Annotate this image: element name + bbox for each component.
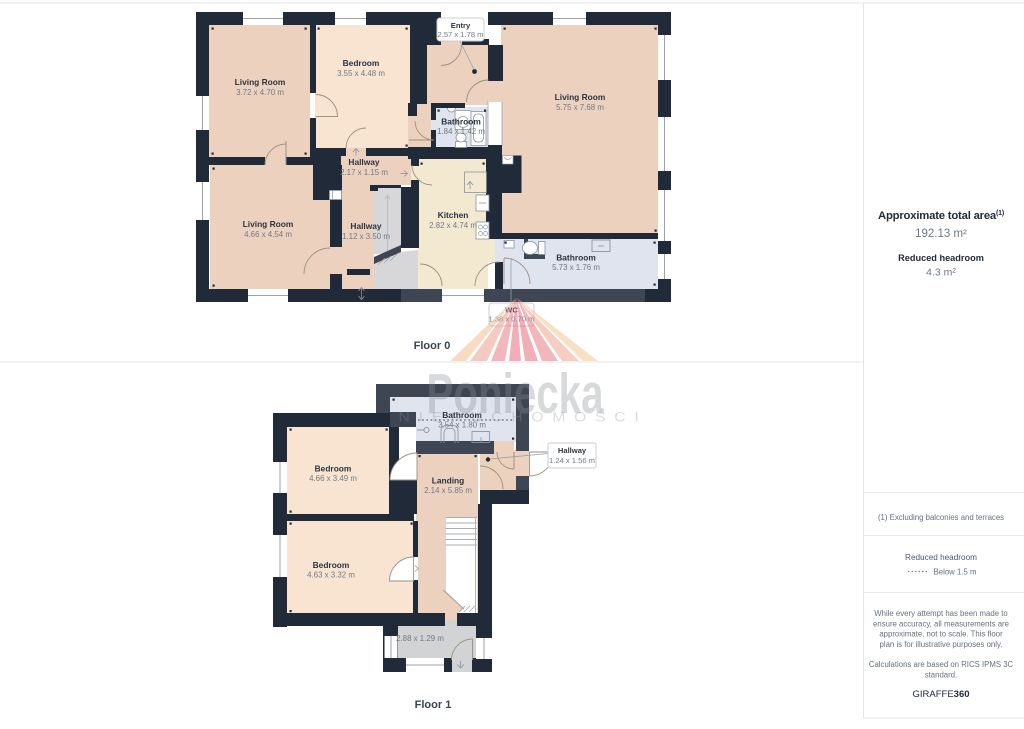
svg-text:Living Room: Living Room — [555, 92, 606, 102]
svg-text:Entry: Entry — [451, 21, 471, 30]
svg-text:Bedroom: Bedroom — [315, 464, 352, 474]
svg-text:1.84 x 1.42 m: 1.84 x 1.42 m — [437, 127, 485, 136]
svg-text:4.66 x 4.54 m: 4.66 x 4.54 m — [244, 230, 292, 239]
svg-text:2.82 x 4.74 m: 2.82 x 4.74 m — [429, 221, 477, 230]
svg-text:3.55 x 4.48 m: 3.55 x 4.48 m — [337, 69, 385, 78]
svg-text:5.75 x 7.68 m: 5.75 x 7.68 m — [556, 103, 604, 112]
svg-text:1.12 x 3.50 m: 1.12 x 3.50 m — [342, 232, 390, 241]
svg-text:(1) Excluding balconies and te: (1) Excluding balconies and terraces — [878, 513, 1004, 522]
svg-text:3.72 x 4.70 m: 3.72 x 4.70 m — [236, 88, 284, 97]
svg-text:Floor 1: Floor 1 — [415, 699, 452, 711]
svg-text:1.24 x 1.56 m: 1.24 x 1.56 m — [549, 456, 595, 465]
svg-text:standard.: standard. — [925, 670, 958, 679]
svg-text:Reduced headroom: Reduced headroom — [898, 253, 984, 263]
svg-text:Living Room: Living Room — [243, 219, 294, 229]
svg-text:Hallway: Hallway — [348, 157, 380, 167]
svg-text:2.14 x 5.85 m: 2.14 x 5.85 m — [424, 486, 472, 495]
svg-text:Reduced headroom: Reduced headroom — [905, 553, 977, 562]
svg-text:2.57 x 1.78 m: 2.57 x 1.78 m — [437, 30, 483, 39]
svg-text:Hallway: Hallway — [350, 221, 382, 231]
svg-text:Landing: Landing — [432, 476, 465, 486]
svg-text:Bedroom: Bedroom — [313, 560, 350, 570]
svg-text:NIERUCHOMOŚCI: NIERUCHOMOŚCI — [399, 410, 648, 425]
svg-text:Bathroom: Bathroom — [441, 117, 481, 127]
svg-text:Approximate total area(1): Approximate total area(1) — [878, 210, 1004, 222]
svg-text:Calculations are based on RICS: Calculations are based on RICS IPMS 3C — [869, 660, 1014, 669]
svg-text:192.13 m²: 192.13 m² — [915, 228, 967, 240]
svg-text:GIRAFFE360: GIRAFFE360 — [912, 689, 969, 700]
svg-text:Hallway: Hallway — [558, 446, 587, 455]
svg-text:ensure accuracy, all measureme: ensure accuracy, all measurements are — [873, 619, 1009, 628]
svg-text:2.88 x 1.29 m: 2.88 x 1.29 m — [396, 634, 444, 643]
svg-text:approximate, not to scale. Thi: approximate, not to scale. This floor — [879, 630, 1003, 639]
svg-text:Bedroom: Bedroom — [343, 58, 380, 68]
svg-text:While every attempt has been m: While every attempt has been made to — [874, 609, 1008, 618]
svg-text:Below 1.5 m: Below 1.5 m — [934, 568, 977, 577]
svg-text:Living Room: Living Room — [235, 77, 286, 87]
svg-text:4.3 m²: 4.3 m² — [926, 267, 956, 279]
svg-text:Kitchen: Kitchen — [438, 210, 469, 220]
svg-text:5.73 x 1.76 m: 5.73 x 1.76 m — [552, 263, 600, 272]
svg-text:plan is for illustrative purpo: plan is for illustrative purposes only. — [880, 640, 1003, 649]
svg-text:Floor 0: Floor 0 — [414, 340, 451, 352]
svg-text:Bathroom: Bathroom — [556, 253, 596, 263]
svg-text:4.66 x 3.49 m: 4.66 x 3.49 m — [309, 474, 357, 483]
svg-text:2.17 x 1.15 m: 2.17 x 1.15 m — [340, 168, 388, 177]
svg-text:4.63 x 3.32 m: 4.63 x 3.32 m — [307, 571, 355, 580]
